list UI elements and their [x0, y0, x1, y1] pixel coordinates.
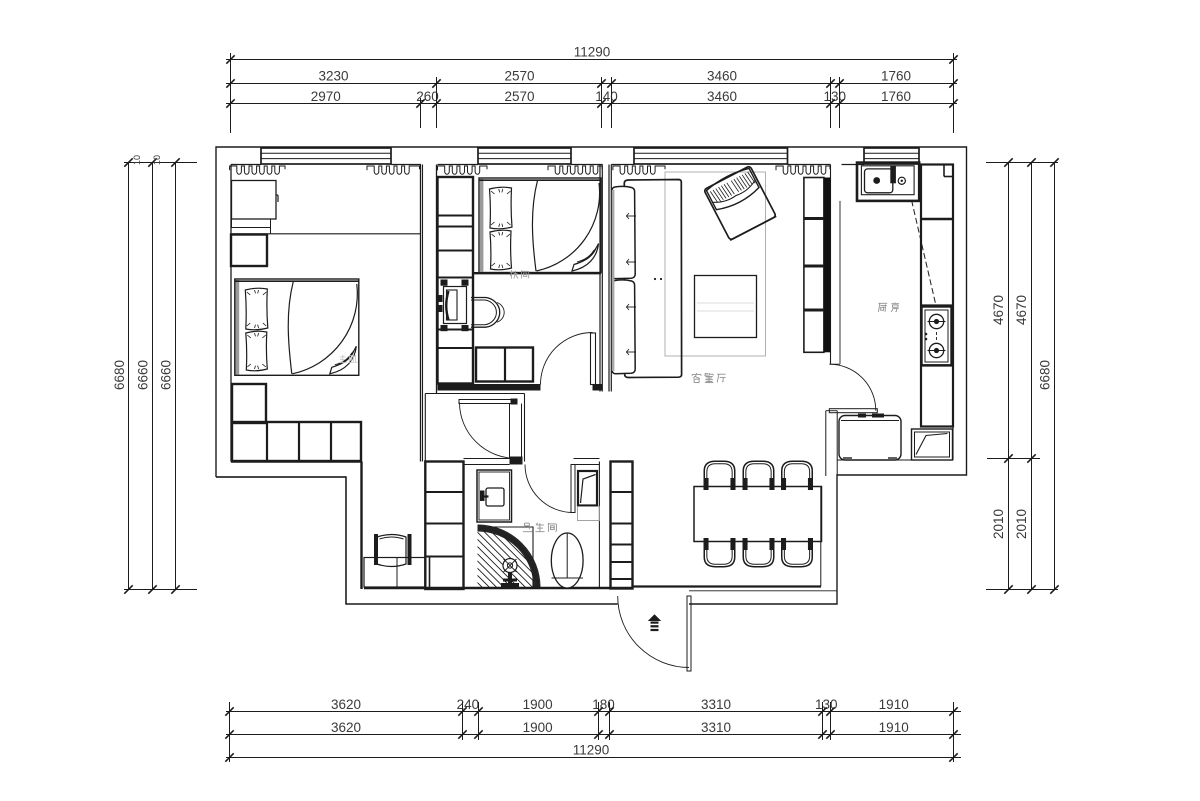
svg-text:11290: 11290 — [574, 45, 611, 60]
svg-text:2570: 2570 — [504, 69, 534, 84]
svg-text:3620: 3620 — [331, 720, 361, 735]
svg-text:4670: 4670 — [1014, 295, 1029, 325]
svg-text:2570: 2570 — [504, 89, 534, 104]
svg-text:1900: 1900 — [523, 697, 553, 712]
svg-text:2010: 2010 — [1014, 509, 1029, 539]
svg-text:1760: 1760 — [881, 69, 911, 84]
svg-text:10: 10 — [152, 155, 162, 165]
svg-text:3620: 3620 — [331, 697, 361, 712]
svg-text:1910: 1910 — [879, 720, 909, 735]
svg-text:10: 10 — [132, 155, 142, 165]
svg-text:6680: 6680 — [112, 360, 127, 390]
svg-text:1760: 1760 — [881, 89, 911, 104]
svg-text:130: 130 — [824, 89, 847, 104]
svg-text:140: 140 — [595, 89, 618, 104]
svg-text:1900: 1900 — [523, 720, 553, 735]
svg-text:2010: 2010 — [991, 509, 1006, 539]
svg-text:3460: 3460 — [707, 69, 737, 84]
svg-text:6680: 6680 — [1038, 360, 1053, 390]
svg-text:6660: 6660 — [136, 360, 151, 390]
svg-text:4670: 4670 — [991, 295, 1006, 325]
svg-text:260: 260 — [416, 89, 439, 104]
svg-text:1910: 1910 — [879, 697, 909, 712]
svg-text:240: 240 — [457, 697, 480, 712]
svg-text:3310: 3310 — [701, 720, 731, 735]
svg-text:2970: 2970 — [311, 89, 341, 104]
svg-text:3310: 3310 — [701, 697, 731, 712]
svg-text:11290: 11290 — [573, 743, 610, 758]
svg-text:3460: 3460 — [707, 89, 737, 104]
svg-text:3230: 3230 — [318, 69, 348, 84]
svg-text:130: 130 — [815, 697, 838, 712]
svg-text:6660: 6660 — [159, 360, 174, 390]
